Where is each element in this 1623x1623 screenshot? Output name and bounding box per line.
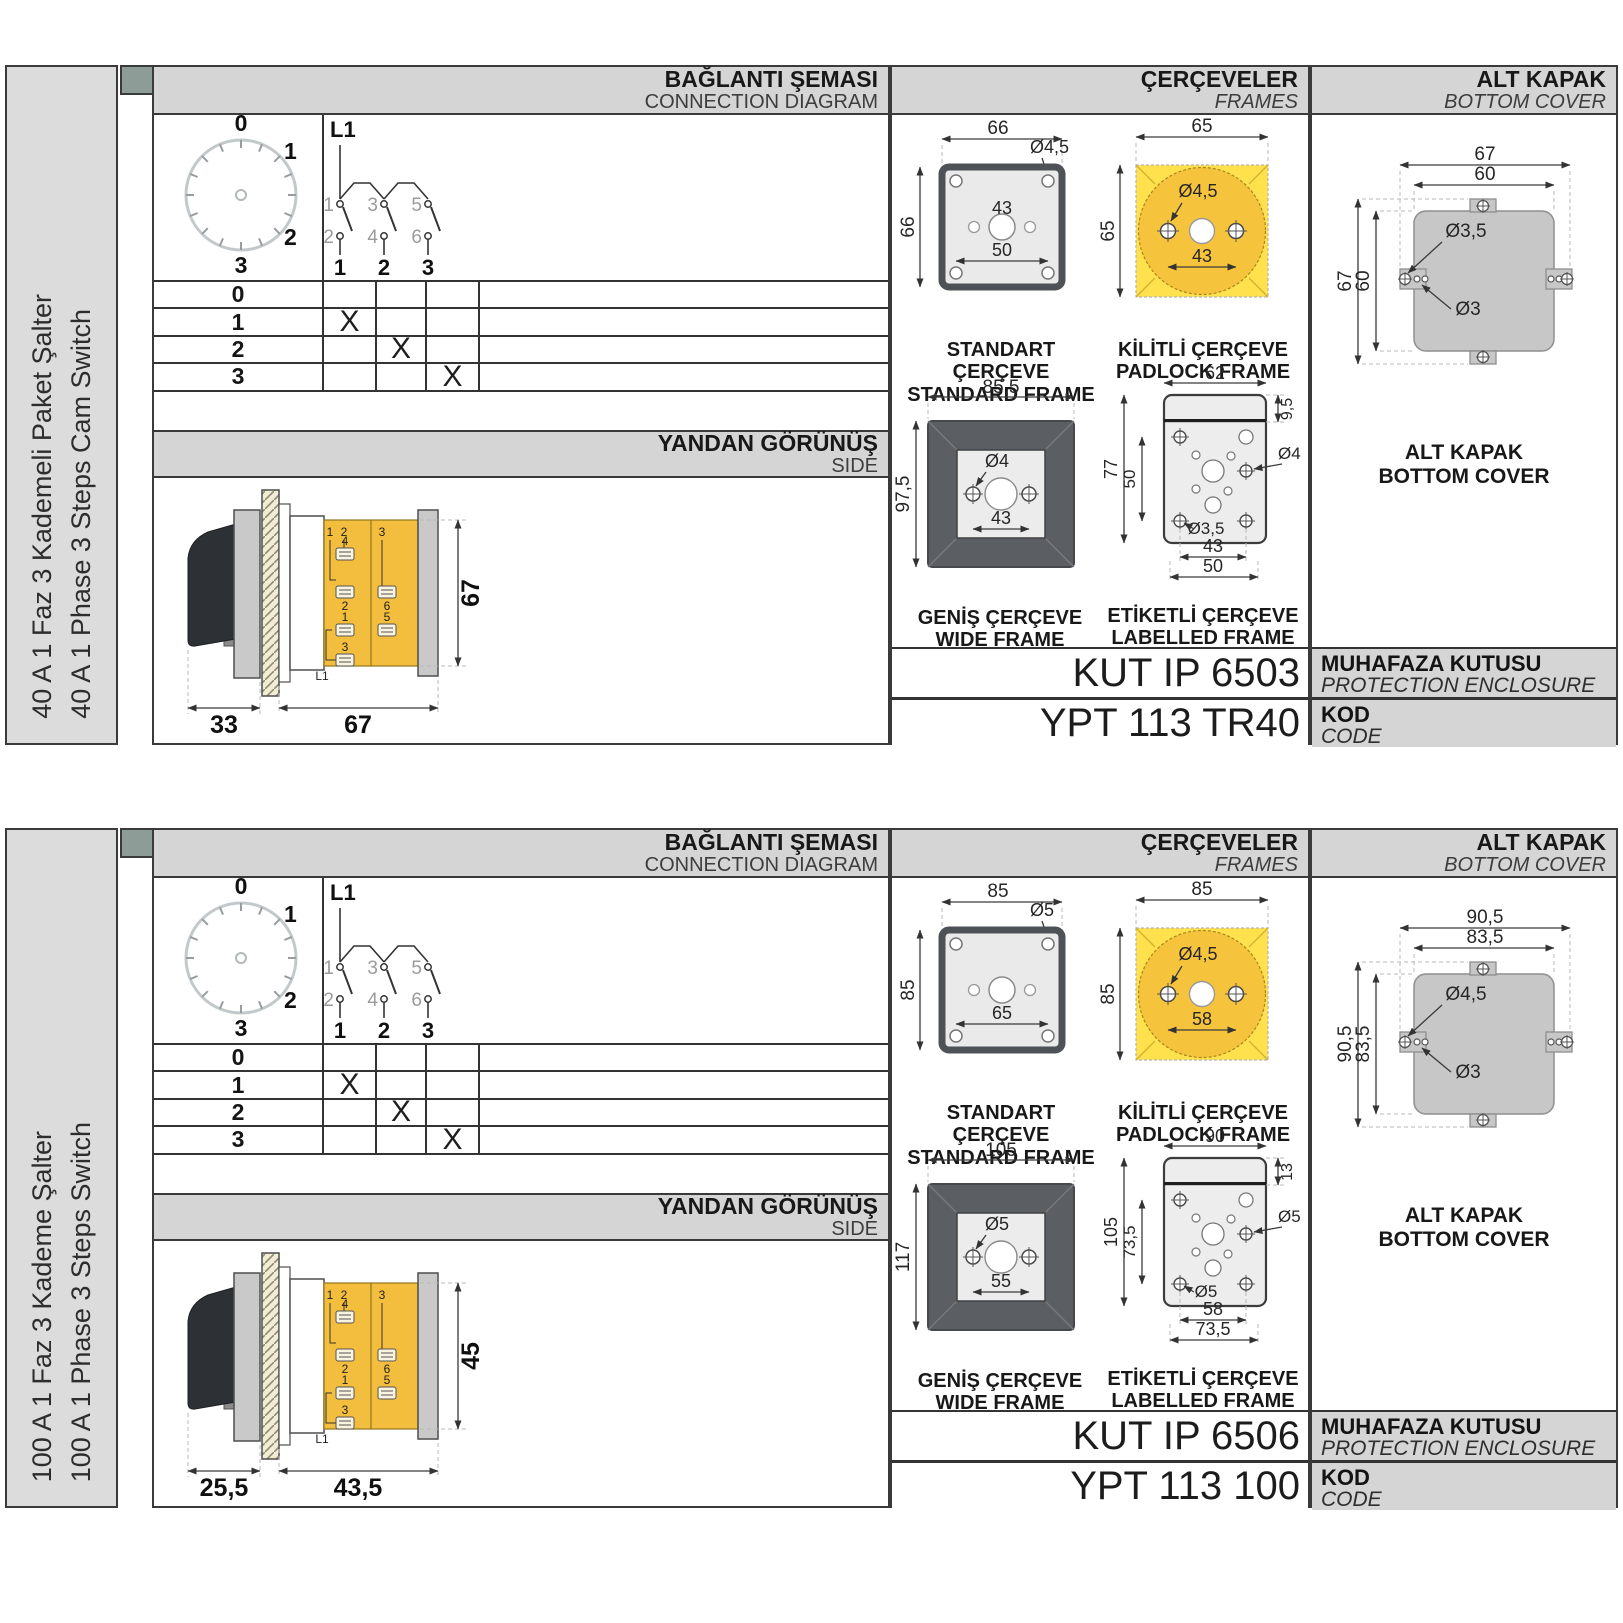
terminal-1: 1 xyxy=(323,958,334,979)
caption-tr: GENİŞ ÇERÇEVE xyxy=(900,607,1100,629)
switching-table: 0 1 X 2 X 3 X xyxy=(154,280,888,392)
table-cell: X xyxy=(377,1100,427,1127)
dial-diagram: 0 1 2 3 xyxy=(156,115,326,279)
side-view: 1 2 3 4 2 6 1 5 3 L1 25,5 43,5 45 xyxy=(154,1241,888,1506)
code-label-en: CODE xyxy=(1321,726,1616,748)
term-lbl: 1 xyxy=(327,525,334,539)
frames-title-tr: ÇERÇEVELER xyxy=(1141,830,1298,854)
connection-title-en: CONNECTION DIAGRAM xyxy=(645,855,878,876)
dim-w: 66 xyxy=(987,118,1008,139)
enclosure-label-en: PROTECTION ENCLOSURE xyxy=(1321,1438,1616,1460)
hole2-callout: Ø3 xyxy=(1455,1062,1480,1083)
terminal-2: 2 xyxy=(323,990,334,1011)
cover-caption-tr: ALT KAPAK xyxy=(1312,1204,1616,1228)
column-1: 1 xyxy=(334,1018,346,1043)
side-view: 1 2 3 4 2 6 1 5 3 L1 33 67 67 xyxy=(154,478,888,743)
wide-frame-drawing: 85,5 97,5 Ø4 43 xyxy=(900,383,1100,601)
enclosure-label-en: PROTECTION ENCLOSURE xyxy=(1321,675,1616,697)
column-3: 3 xyxy=(422,1018,434,1043)
dim-h: 85 xyxy=(898,979,919,1000)
mounting-plate xyxy=(262,1253,279,1459)
enclosure-code: KUT IP 6503 xyxy=(892,647,1308,697)
dim-w: 90 xyxy=(1205,1126,1225,1146)
corner-marker xyxy=(120,65,156,95)
connection-header: BAĞLANTI ŞEMASI CONNECTION DIAGRAM xyxy=(154,830,888,878)
code-label-en: CODE xyxy=(1321,1489,1616,1511)
term-lbl: 5 xyxy=(384,610,391,624)
bottom-cover-drawing: 90,5 83,5 90,5 83,5 xyxy=(1318,908,1614,1168)
labelled-frame-caption: ETİKETLİ ÇERÇEVE LABELLED FRAME xyxy=(1100,1368,1306,1413)
dim-strip: 13 xyxy=(1279,1163,1296,1181)
switching-table: 0 1 X 2 X 3 X xyxy=(154,1043,888,1155)
cover-panel: ALT KAPAK BOTTOM COVER 67 60 67 60 xyxy=(1310,65,1618,745)
frames-title-tr: ÇERÇEVELER xyxy=(1141,67,1298,91)
cover-caption-en: BOTTOM COVER xyxy=(1312,465,1616,489)
side-view-drawing: 1 2 3 4 2 6 1 5 3 L1 33 67 67 xyxy=(166,482,666,740)
side-title-tr: YANDAN GÖRÜNÜŞ xyxy=(658,1194,878,1218)
product-name-en: 100 A 1 Phase 3 Steps Switch xyxy=(66,1122,97,1482)
dim-body: 43,5 xyxy=(334,1474,383,1502)
cover-header: ALT KAPAK BOTTOM COVER xyxy=(1312,67,1616,115)
dim-height: 67 xyxy=(457,579,485,607)
column-2: 2 xyxy=(378,1018,390,1043)
wide-frame: 105 117 Ø5 55 GENİŞ Ç xyxy=(900,1146,1100,1415)
table-filler xyxy=(480,364,888,391)
side-title-tr: YANDAN GÖRÜNÜŞ xyxy=(658,431,878,455)
code-label-tr: KOD xyxy=(1321,703,1616,726)
terminal-5: 5 xyxy=(411,195,422,216)
side-title-en: SIDE xyxy=(831,1219,878,1240)
caption-tr: GENİŞ ÇERÇEVE xyxy=(900,1370,1100,1392)
product-code: YPT 113 100 xyxy=(892,1460,1308,1510)
labelled-frame-caption: ETİKETLİ ÇERÇEVE LABELLED FRAME xyxy=(1100,605,1306,650)
mounting-plate xyxy=(262,490,279,696)
wide-frame-drawing: 105 117 Ø5 55 xyxy=(900,1146,1100,1364)
corner-marker xyxy=(120,828,156,858)
dim-d1: 43 xyxy=(991,508,1011,528)
table-row-label: 1 xyxy=(154,1072,324,1099)
cover-title-en: BOTTOM COVER xyxy=(1444,855,1606,876)
dial-pos-0: 0 xyxy=(235,110,248,136)
cover-caption: ALT KAPAK BOTTOM COVER xyxy=(1312,1204,1616,1252)
padlock-frame: 85 85 Ø4,5 58 KİLİTLİ xyxy=(1108,884,1298,1147)
standard-frame-drawing: 85 Ø5 85 65 xyxy=(906,884,1096,1096)
connection-panel: BAĞLANTI ŞEMASI CONNECTION DIAGRAM xyxy=(152,828,890,1508)
caption-tr: KİLİTLİ ÇERÇEVE xyxy=(1108,339,1298,361)
standard-frame: 85 Ø5 85 65 xyxy=(906,884,1096,1169)
product-name-tr: 100 A 1 Faz 3 Kademe Şalter xyxy=(27,1131,58,1482)
terminal-3: 3 xyxy=(367,958,378,979)
table-cell xyxy=(324,1100,377,1127)
dim-w: 105 xyxy=(985,1140,1017,1161)
hole-callout: Ø4,5 xyxy=(1178,181,1217,201)
frames-panel: ÇERÇEVELER FRAMES 66 Ø4,5 66 xyxy=(890,65,1310,745)
hole2-callout: Ø3 xyxy=(1455,299,1480,320)
code-label: KOD CODE xyxy=(1312,1460,1616,1510)
table-filler xyxy=(480,309,888,336)
enclosure-code-value: KUT IP 6506 xyxy=(1072,1414,1300,1459)
diagram-separator xyxy=(322,115,324,280)
table-cell xyxy=(377,1045,427,1072)
cover-area: 90,5 83,5 90,5 83,5 xyxy=(1312,878,1616,1410)
table-cell: X xyxy=(427,364,480,391)
term-lbl: 5 xyxy=(384,1373,391,1387)
dim-d2: 50 xyxy=(1203,556,1223,576)
table-filler xyxy=(480,337,888,364)
term-lbl: 3 xyxy=(342,640,349,654)
connection-title-en: CONNECTION DIAGRAM xyxy=(645,92,878,113)
dim-bot: 50 xyxy=(992,240,1012,260)
terminal-6: 6 xyxy=(411,227,422,248)
caption-tr: KİLİTLİ ÇERÇEVE xyxy=(1108,1102,1298,1124)
table-row-label: 2 xyxy=(154,337,324,364)
switch-schematic: L1 1 3 5 2 4 6 1 2 xyxy=(304,878,884,1042)
table-cell: X xyxy=(427,1127,480,1154)
standard-frame: 66 Ø4,5 66 43 50 xyxy=(906,121,1096,406)
caption-tr: ETİKETLİ ÇERÇEVE xyxy=(1100,605,1306,627)
dim-h: 77 xyxy=(1101,459,1121,479)
term-lbl: 1 xyxy=(342,1373,349,1387)
hole1-callout: Ø4,5 xyxy=(1445,984,1486,1005)
hole1-callout: Ø4 xyxy=(1278,444,1301,463)
phase-label: L1 xyxy=(330,117,356,142)
hole-callout: Ø4 xyxy=(985,451,1009,471)
frames-area: 66 Ø4,5 66 43 50 xyxy=(892,115,1308,647)
padlock-frame-drawing: 65 65 Ø4,5 43 xyxy=(1108,121,1298,333)
dim-h: 97,5 xyxy=(893,476,914,513)
hole1-callout: Ø3,5 xyxy=(1445,221,1486,242)
connection-header: BAĞLANTI ŞEMASI CONNECTION DIAGRAM xyxy=(154,67,888,115)
cover-area: 67 60 67 60 xyxy=(1312,115,1616,647)
dim-h2: 60 xyxy=(1353,270,1374,291)
dim-d1: 43 xyxy=(1192,246,1212,266)
dim-w: 85 xyxy=(1191,879,1212,900)
dim-strip: 9,5 xyxy=(1279,398,1296,420)
product-code: YPT 113 TR40 xyxy=(892,697,1308,747)
dim-d1: 58 xyxy=(1203,1299,1223,1319)
cover-panel: ALT KAPAK BOTTOM COVER 90,5 83,5 90,5 83… xyxy=(1310,828,1618,1508)
product-code-value: YPT 113 100 xyxy=(1070,1464,1300,1509)
code-label: KOD CODE xyxy=(1312,697,1616,747)
enclosure-code: KUT IP 6506 xyxy=(892,1410,1308,1460)
table-cell xyxy=(377,364,427,391)
table-filler xyxy=(480,1045,888,1072)
dim-height: 45 xyxy=(457,1342,485,1370)
product-section-0: 40 A 1 Faz 3 Kademeli Paket Şalter 40 A … xyxy=(5,65,1618,745)
terminal-5: 5 xyxy=(411,958,422,979)
dim-h: 117 xyxy=(893,1242,914,1272)
table-cell xyxy=(377,1127,427,1154)
enclosure-label: MUHAFAZA KUTUSU PROTECTION ENCLOSURE xyxy=(1312,1410,1616,1460)
column-1: 1 xyxy=(334,255,346,280)
dim-h: 105 xyxy=(1101,1217,1121,1247)
dim-d1: 43 xyxy=(1203,536,1223,556)
caption-tr: ETİKETLİ ÇERÇEVE xyxy=(1100,1368,1306,1390)
table-cell xyxy=(324,364,377,391)
standard-frame-drawing: 66 Ø4,5 66 43 50 xyxy=(906,121,1096,333)
terminal-4: 4 xyxy=(367,227,378,248)
cover-caption-tr: ALT KAPAK xyxy=(1312,441,1616,465)
dim-w2: 60 xyxy=(1474,164,1495,185)
code-label-tr: KOD xyxy=(1321,1466,1616,1489)
table-row-label: 2 xyxy=(154,1100,324,1127)
connection-title-tr: BAĞLANTI ŞEMASI xyxy=(665,830,878,854)
dial-pos-3: 3 xyxy=(235,252,248,278)
catalog-page: { "colors": { "header_bg": "#d5d5d5", "s… xyxy=(0,0,1623,1623)
switch-handle xyxy=(188,1287,236,1409)
dim-d1: 58 xyxy=(1192,1009,1212,1029)
hole-callout: Ø5 xyxy=(1030,900,1054,920)
dim-mid: 43 xyxy=(992,198,1012,218)
dim-handle: 33 xyxy=(210,711,238,739)
term-lbl: 3 xyxy=(342,1403,349,1417)
dim-w1: 67 xyxy=(1474,144,1495,165)
bottom-cover-drawing: 67 60 67 60 xyxy=(1318,145,1614,405)
terminal-1: 1 xyxy=(323,195,334,216)
side-header: YANDAN GÖRÜNÜŞ SIDE xyxy=(154,1193,888,1241)
terminal-6: 6 xyxy=(411,990,422,1011)
switch-handle xyxy=(188,524,236,646)
frames-panel: ÇERÇEVELER FRAMES 85 Ø5 85 xyxy=(890,828,1310,1508)
column-3: 3 xyxy=(422,255,434,280)
term-lbl: 4 xyxy=(342,1297,349,1311)
dim-h: 85 xyxy=(1098,983,1119,1004)
cover-header: ALT KAPAK BOTTOM COVER xyxy=(1312,830,1616,878)
dim-h2: 83,5 xyxy=(1353,1026,1374,1063)
wide-frame-caption: GENİŞ ÇERÇEVE WIDE FRAME xyxy=(900,607,1100,652)
dim-h2: 73,5 xyxy=(1120,1225,1139,1258)
table-cell: X xyxy=(324,1072,377,1099)
labelled-frame-drawing: 90 13 105 73,5 xyxy=(1100,1134,1306,1362)
table-filler xyxy=(480,282,888,309)
term-lbl: 1 xyxy=(327,1288,334,1302)
table-cell xyxy=(324,337,377,364)
dial-diagram: 0 1 2 3 xyxy=(156,878,326,1042)
switch-schematic: L1 1 3 5 2 4 6 1 2 xyxy=(304,115,884,279)
hole-callout: Ø4,5 xyxy=(1030,137,1069,157)
cover-title-tr: ALT KAPAK xyxy=(1477,67,1606,91)
padlock-frame: 65 65 Ø4,5 43 KİLİTLİ xyxy=(1108,121,1298,384)
product-section-1: 100 A 1 Faz 3 Kademe Şalter 100 A 1 Phas… xyxy=(5,828,1618,1508)
table-filler xyxy=(480,1127,888,1154)
cover-title-en: BOTTOM COVER xyxy=(1444,92,1606,113)
wide-frame-caption: GENİŞ ÇERÇEVE WIDE FRAME xyxy=(900,1370,1100,1415)
dial-pos-2: 2 xyxy=(284,987,297,1013)
dial-pos-2: 2 xyxy=(284,224,297,250)
dial-pos-1: 1 xyxy=(284,901,297,927)
term-lbl: L1 xyxy=(315,1432,329,1446)
enclosure-code-value: KUT IP 6503 xyxy=(1072,651,1300,696)
term-lbl: L1 xyxy=(315,669,329,683)
table-cell xyxy=(324,1127,377,1154)
connection-panel: BAĞLANTI ŞEMASI CONNECTION DIAGRAM xyxy=(152,65,890,745)
frames-title-en: FRAMES xyxy=(1215,855,1298,876)
padlock-frame-drawing: 85 85 Ø4,5 58 xyxy=(1108,884,1298,1096)
dim-w: 62 xyxy=(1205,363,1225,383)
table-row-label: 3 xyxy=(154,1127,324,1154)
dim-body: 67 xyxy=(344,711,372,739)
labelled-frame: 62 9,5 77 50 xyxy=(1100,371,1306,650)
enclosure-label-tr: MUHAFAZA KUTUSU xyxy=(1321,652,1616,675)
term-lbl: 3 xyxy=(379,525,386,539)
hole-callout: Ø4,5 xyxy=(1178,944,1217,964)
enclosure-label-tr: MUHAFAZA KUTUSU xyxy=(1321,1415,1616,1438)
table-filler xyxy=(480,1100,888,1127)
terminal-3: 3 xyxy=(367,195,378,216)
dim-h: 66 xyxy=(898,216,919,237)
terminal-2: 2 xyxy=(323,227,334,248)
dim-w1: 90,5 xyxy=(1467,907,1504,928)
table-cell xyxy=(427,309,480,336)
frames-header: ÇERÇEVELER FRAMES xyxy=(892,67,1308,115)
table-cell: X xyxy=(324,309,377,336)
table-row-label: 0 xyxy=(154,1045,324,1072)
product-name-en: 40 A 1 Phase 3 Steps Cam Switch xyxy=(66,309,97,719)
table-row-label: 1 xyxy=(154,309,324,336)
connection-title-tr: BAĞLANTI ŞEMASI xyxy=(665,67,878,91)
table-cell xyxy=(377,282,427,309)
cover-title-tr: ALT KAPAK xyxy=(1477,830,1606,854)
term-lbl: 1 xyxy=(342,610,349,624)
dim-d1: 55 xyxy=(991,1271,1011,1291)
dial-pos-1: 1 xyxy=(284,138,297,164)
dim-h: 65 xyxy=(1098,220,1119,241)
cover-caption-en: BOTTOM COVER xyxy=(1312,1228,1616,1252)
term-lbl: 4 xyxy=(342,534,349,548)
side-title-en: SIDE xyxy=(831,456,878,477)
diagram-zone: 0 1 2 3 L1 1 3 xyxy=(154,115,888,280)
diagram-separator xyxy=(322,878,324,1043)
product-code-value: YPT 113 TR40 xyxy=(1040,701,1300,746)
diagram-zone: 0 1 2 3 L1 1 3 xyxy=(154,878,888,1043)
table-cell xyxy=(427,1072,480,1099)
term-lbl: 3 xyxy=(379,1288,386,1302)
dim-w2: 83,5 xyxy=(1467,927,1504,948)
dim-w: 85 xyxy=(987,881,1008,902)
frames-header: ÇERÇEVELER FRAMES xyxy=(892,830,1308,878)
frames-title-en: FRAMES xyxy=(1215,92,1298,113)
frames-area: 85 Ø5 85 65 xyxy=(892,878,1308,1410)
table-row-label: 3 xyxy=(154,364,324,391)
dim-w: 65 xyxy=(1191,116,1212,137)
column-2: 2 xyxy=(378,255,390,280)
labelled-frame: 90 13 105 73,5 xyxy=(1100,1134,1306,1413)
product-sidebar: 100 A 1 Faz 3 Kademe Şalter 100 A 1 Phas… xyxy=(5,828,118,1508)
enclosure-label: MUHAFAZA KUTUSU PROTECTION ENCLOSURE xyxy=(1312,647,1616,697)
dim-bot: 65 xyxy=(992,1003,1012,1023)
table-cell: X xyxy=(377,337,427,364)
product-sidebar: 40 A 1 Faz 3 Kademeli Paket Şalter 40 A … xyxy=(5,65,118,745)
dial-pos-3: 3 xyxy=(235,1015,248,1041)
dim-handle: 25,5 xyxy=(200,1474,249,1502)
terminal-4: 4 xyxy=(367,990,378,1011)
product-name-tr: 40 A 1 Faz 3 Kademeli Paket Şalter xyxy=(27,294,58,719)
table-row-label: 0 xyxy=(154,282,324,309)
dim-w: 85,5 xyxy=(983,377,1020,398)
wide-frame: 85,5 97,5 Ø4 43 GENİŞ xyxy=(900,383,1100,652)
labelled-frame-drawing: 62 9,5 77 50 xyxy=(1100,371,1306,599)
side-view-drawing: 1 2 3 4 2 6 1 5 3 L1 25,5 43,5 45 xyxy=(166,1245,666,1503)
phase-label: L1 xyxy=(330,880,356,905)
hole1-callout: Ø5 xyxy=(1278,1207,1301,1226)
side-header: YANDAN GÖRÜNÜŞ SIDE xyxy=(154,430,888,478)
dim-d2: 73,5 xyxy=(1195,1319,1230,1339)
table-filler xyxy=(480,1072,888,1099)
dim-h2: 50 xyxy=(1120,470,1139,489)
hole-callout: Ø5 xyxy=(985,1214,1009,1234)
cover-caption: ALT KAPAK BOTTOM COVER xyxy=(1312,441,1616,489)
table-cell xyxy=(427,282,480,309)
table-cell xyxy=(427,1045,480,1072)
dial-pos-0: 0 xyxy=(235,873,248,899)
